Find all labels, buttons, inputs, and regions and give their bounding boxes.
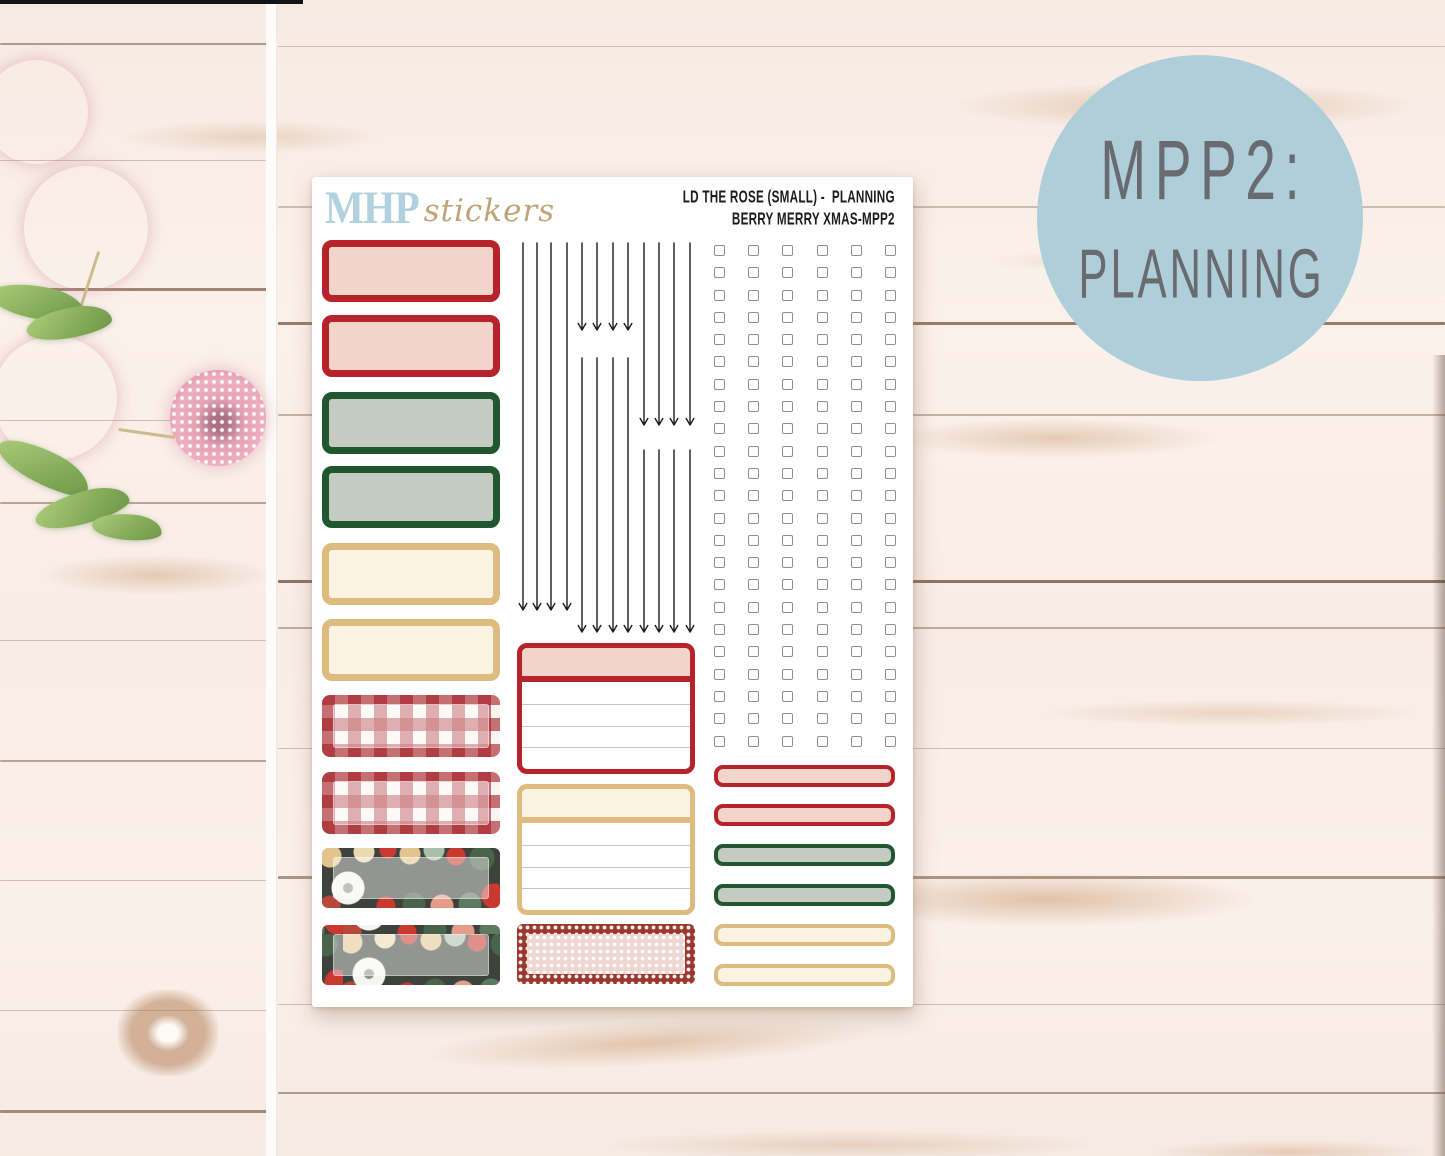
checkbox-sticker: [748, 669, 759, 680]
checkbox-sticker: [817, 245, 828, 256]
checkbox-sticker: [851, 535, 862, 546]
checkbox-sticker: [851, 356, 862, 367]
checkbox-sticker: [817, 736, 828, 747]
checkbox-sticker: [885, 490, 896, 501]
bar-sticker-red: [714, 765, 895, 787]
checkbox-sticker: [748, 691, 759, 702]
checkbox-sticker: [748, 513, 759, 524]
checkbox-sticker: [817, 468, 828, 479]
checkbox-sticker: [817, 646, 828, 657]
checkbox-sticker: [782, 334, 793, 345]
checkbox-sticker: [782, 646, 793, 657]
wood-grain-streak: [600, 1130, 1100, 1156]
checkbox-sticker: [851, 602, 862, 613]
checkbox-sticker: [714, 624, 725, 635]
checkbox-sticker: [748, 557, 759, 568]
checkbox-sticker: [851, 267, 862, 278]
checkbox-sticker: [782, 468, 793, 479]
ruled-line: [522, 747, 690, 748]
checkbox-sticker: [748, 245, 759, 256]
checkbox-sticker: [782, 312, 793, 323]
checkbox-sticker: [748, 468, 759, 479]
wood-grain-streak: [1040, 700, 1420, 726]
checkbox-sticker: [885, 267, 896, 278]
checkbox-sticker: [714, 736, 725, 747]
checkbox-sticker: [817, 624, 828, 635]
bar-sticker-green: [714, 884, 895, 906]
checkbox-sticker: [714, 468, 725, 479]
checkbox-sticker: [817, 312, 828, 323]
plank-gap-line: [0, 880, 272, 881]
checkbox-sticker: [748, 446, 759, 457]
checkbox-sticker: [748, 379, 759, 390]
checkbox-sticker: [817, 490, 828, 501]
plank-gap-line: [0, 640, 272, 641]
checkbox-sticker: [885, 312, 896, 323]
checkbox-sticker: [782, 513, 793, 524]
badge-code: MPP2:: [1092, 121, 1309, 218]
checkbox-sticker: [817, 379, 828, 390]
pink-pom-flower: [24, 166, 148, 290]
checkbox-sticker: [817, 513, 828, 524]
sticker-sheet: MHPstickers LD THE ROSE (SMALL) - PLANNI…: [312, 177, 913, 1007]
dot-pattern-box-sticker: [517, 924, 695, 984]
lined-box-body: [522, 823, 690, 910]
checkbox-sticker: [817, 423, 828, 434]
checkbox-sticker: [817, 290, 828, 301]
wood-grain-streak: [890, 418, 1220, 458]
lined-box-body: [522, 682, 690, 769]
checkbox-sticker: [817, 713, 828, 724]
dot-box-inner: [527, 934, 685, 974]
checkbox-sticker: [782, 290, 793, 301]
checkbox-sticker: [714, 490, 725, 501]
ruled-line: [522, 845, 690, 846]
checkbox-sticker: [714, 557, 725, 568]
ruled-line: [522, 867, 690, 868]
checkbox-sticker: [714, 401, 725, 412]
pink-pom-flower: [170, 370, 266, 466]
wood-grain-streak: [120, 120, 380, 154]
checkbox-sticker: [714, 535, 725, 546]
checkbox-sticker: [885, 290, 896, 301]
checkbox-sticker: [714, 356, 725, 367]
plank-gap-line: [278, 46, 1445, 47]
bar-sticker-red: [714, 804, 895, 826]
checkbox-sticker: [748, 312, 759, 323]
checkbox-sticker: [885, 468, 896, 479]
checkbox-sticker: [748, 423, 759, 434]
checkbox-sticker: [885, 513, 896, 524]
checkbox-sticker: [851, 379, 862, 390]
checkbox-sticker: [748, 579, 759, 590]
checkbox-sticker: [782, 736, 793, 747]
bar-sticker-tan: [714, 924, 895, 946]
plank-gap-line: [0, 43, 272, 45]
checkbox-sticker: [851, 468, 862, 479]
checkbox-sticker: [782, 579, 793, 590]
checkbox-sticker: [851, 669, 862, 680]
checkbox-sticker: [851, 557, 862, 568]
wood-grain-streak: [40, 555, 270, 595]
checkbox-sticker: [851, 312, 862, 323]
checkbox-sticker: [817, 356, 828, 367]
checkbox-sticker: [885, 624, 896, 635]
checkbox-sticker: [714, 713, 725, 724]
checkbox-sticker: [885, 379, 896, 390]
checkbox-sticker: [714, 446, 725, 457]
checkbox-sticker: [782, 267, 793, 278]
checkbox-sticker: [748, 290, 759, 301]
checkbox-sticker: [885, 401, 896, 412]
checkbox-sticker: [851, 691, 862, 702]
checkbox-sticker: [817, 535, 828, 546]
checkbox-sticker: [714, 669, 725, 680]
checkbox-sticker: [851, 290, 862, 301]
checkbox-sticker: [748, 736, 759, 747]
checkbox-sticker: [782, 490, 793, 501]
plank-gap-line: [0, 760, 272, 762]
plank-gap-line: [0, 1110, 272, 1113]
checkbox-sticker: [714, 423, 725, 434]
checkbox-sticker: [851, 245, 862, 256]
ruled-line: [522, 888, 690, 889]
checkbox-sticker: [782, 356, 793, 367]
checkbox-sticker: [782, 535, 793, 546]
checkbox-sticker: [714, 312, 725, 323]
checkbox-sticker: [714, 245, 725, 256]
checkbox-sticker: [885, 423, 896, 434]
checkbox-sticker: [714, 267, 725, 278]
plank-gap-line: [0, 502, 272, 504]
checkbox-sticker: [885, 535, 896, 546]
checkbox-sticker: [851, 624, 862, 635]
checkbox-sticker: [714, 290, 725, 301]
checkbox-sticker: [782, 379, 793, 390]
checkbox-sticker: [885, 646, 896, 657]
checkbox-sticker: [885, 245, 896, 256]
checkbox-sticker: [885, 669, 896, 680]
checkbox-sticker: [851, 513, 862, 524]
checkbox-sticker: [782, 669, 793, 680]
checkbox-sticker: [782, 446, 793, 457]
checkbox-sticker: [817, 446, 828, 457]
checkbox-sticker: [885, 334, 896, 345]
checkbox-sticker: [851, 446, 862, 457]
checkbox-sticker: [851, 646, 862, 657]
lined-box-header: [522, 648, 690, 682]
checkbox-sticker: [748, 334, 759, 345]
checkbox-sticker: [851, 736, 862, 747]
checkbox-sticker: [817, 334, 828, 345]
checkbox-sticker: [782, 602, 793, 613]
wood-knot: [118, 990, 218, 1076]
checkbox-sticker: [817, 602, 828, 613]
checkbox-sticker: [748, 602, 759, 613]
bar-sticker-green: [714, 844, 895, 866]
badge-circle: MPP2: PLANNING: [1037, 55, 1363, 381]
checkbox-sticker: [748, 490, 759, 501]
checkbox-sticker: [748, 646, 759, 657]
checkbox-sticker: [748, 401, 759, 412]
checkbox-sticker: [885, 713, 896, 724]
checkbox-sticker: [748, 535, 759, 546]
checkbox-sticker: [817, 669, 828, 680]
checkbox-sticker: [782, 557, 793, 568]
checkbox-sticker-grid: [714, 245, 896, 747]
lined-box-sticker-red: [517, 643, 695, 774]
checkbox-sticker: [885, 736, 896, 747]
checkbox-sticker: [714, 646, 725, 657]
checkbox-sticker: [851, 713, 862, 724]
checkbox-sticker: [851, 423, 862, 434]
wood-grain-streak: [1150, 1140, 1430, 1156]
checkbox-sticker: [817, 691, 828, 702]
lined-box-header: [522, 789, 690, 823]
photo-right-edge: [1432, 355, 1445, 1156]
checkbox-sticker: [748, 624, 759, 635]
plank-gap-line: [278, 1092, 1445, 1094]
checkbox-sticker: [885, 356, 896, 367]
badge-label: PLANNING: [1075, 231, 1324, 313]
ruled-line: [522, 704, 690, 705]
checkbox-sticker: [714, 513, 725, 524]
checkbox-sticker: [782, 713, 793, 724]
checkbox-sticker: [714, 334, 725, 345]
checkbox-sticker: [714, 691, 725, 702]
checkbox-sticker: [782, 401, 793, 412]
checkbox-sticker: [885, 691, 896, 702]
checkbox-sticker: [748, 356, 759, 367]
checkbox-sticker: [782, 423, 793, 434]
checkbox-sticker: [817, 557, 828, 568]
checkbox-sticker: [885, 446, 896, 457]
product-photo: MHPstickers LD THE ROSE (SMALL) - PLANNI…: [0, 0, 1445, 1156]
checkbox-sticker: [885, 579, 896, 590]
checkbox-sticker: [885, 557, 896, 568]
checkbox-sticker: [851, 579, 862, 590]
checkbox-sticker: [714, 379, 725, 390]
checkbox-sticker: [817, 401, 828, 412]
bar-sticker-tan: [714, 964, 895, 986]
ruled-line: [522, 726, 690, 727]
checkbox-sticker: [817, 579, 828, 590]
checkbox-sticker: [748, 267, 759, 278]
checkbox-sticker: [782, 624, 793, 635]
checkbox-sticker: [748, 713, 759, 724]
checkbox-sticker: [714, 579, 725, 590]
checkbox-sticker: [817, 267, 828, 278]
lined-box-sticker-tan: [517, 784, 695, 915]
checkbox-sticker: [714, 602, 725, 613]
checkbox-sticker: [782, 691, 793, 702]
checkbox-sticker: [851, 490, 862, 501]
photo-top-edge: [0, 0, 303, 4]
checkbox-sticker: [851, 334, 862, 345]
checkbox-sticker: [782, 245, 793, 256]
photo-seam: [266, 0, 277, 1156]
checkbox-sticker: [885, 602, 896, 613]
checkbox-sticker: [851, 401, 862, 412]
